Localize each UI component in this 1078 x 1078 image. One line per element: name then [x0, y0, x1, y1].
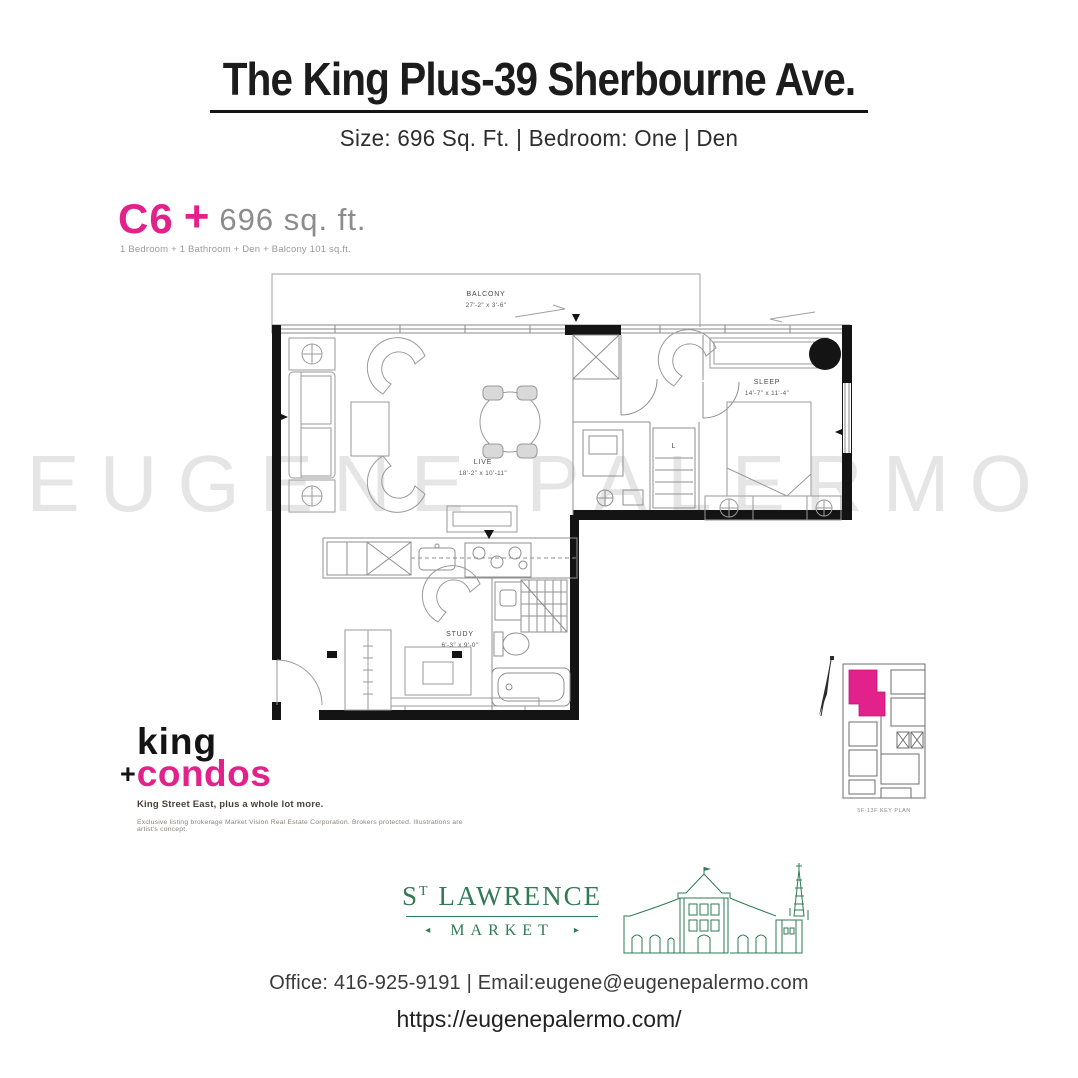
bathroom-area	[492, 578, 570, 710]
unit-description: 1 Bedroom + 1 Bathroom + Den + Balcony 1…	[120, 244, 367, 255]
north-arrow-icon	[819, 656, 834, 716]
market-building-illustration	[618, 858, 818, 963]
brand-plus-icon: +	[120, 762, 136, 786]
balcony-label: BALCONY	[466, 291, 505, 298]
kitchen-area	[323, 530, 577, 578]
market-logo-text: ST LAWRENCE ◂ MARKET ▸	[402, 881, 602, 941]
keyplan-building	[843, 664, 925, 798]
sleep-dims: 14'-7" x 11'-4"	[745, 390, 789, 397]
sleep-label: SLEEP	[754, 379, 781, 386]
keyplan-caption: 5F-13F KEY PLAN	[857, 808, 911, 814]
bedroom-window	[843, 383, 851, 453]
website-url: https://eugenepalermo.com/	[0, 1006, 1078, 1033]
title-underline	[210, 110, 868, 113]
brand-condos-row: + condos	[120, 757, 480, 790]
unit-block: C6 + 696 sq. ft. 1 Bedroom + 1 Bathroom …	[118, 198, 367, 255]
plus-icon: +	[184, 195, 210, 239]
market-logo: ST LAWRENCE ◂ MARKET ▸	[402, 858, 818, 963]
living-area	[289, 338, 540, 532]
brand-condos: condos	[137, 757, 272, 790]
live-dims: 18'-2" x 10'-11"	[459, 470, 507, 477]
flyer-page: The King Plus-39 Sherbourne Ave. Size: 6…	[0, 0, 1078, 1078]
brand-tagline: King Street East, plus a whole lot more.	[137, 799, 480, 810]
study-area	[277, 566, 539, 710]
keyplan: 5F-13F KEY PLAN	[805, 650, 940, 818]
brand-block: king + condos King Street East, plus a w…	[120, 726, 480, 833]
keyplan-unit-highlight	[849, 670, 885, 716]
linen-label: L	[672, 443, 677, 450]
market-sub: ◂ MARKET ▸	[402, 922, 602, 940]
balcony-dims: 27'-2" x 3'-6"	[466, 302, 507, 309]
bedroom-area	[658, 330, 841, 520]
page-title: The King Plus-39 Sherbourne Ave.	[65, 52, 1014, 106]
study-dims: 6'-3" x 9'-0"	[442, 642, 479, 649]
page-subtitle: Size: 696 Sq. Ft. | Bedroom: One | Den	[16, 125, 1062, 152]
balcony	[272, 274, 815, 327]
floorplan-drawing: BALCONY 27'-2" x 3'-6"	[255, 262, 875, 737]
study-label: STUDY	[446, 631, 474, 638]
header: The King Plus-39 Sherbourne Ave. Size: 6…	[0, 52, 1078, 152]
market-rule	[406, 916, 598, 918]
left-arrow-icon: ◂	[425, 925, 430, 936]
market-name: ST LAWRENCE	[402, 881, 602, 912]
brand-disclaimer: Exclusive listing brokerage Market Visio…	[137, 819, 480, 833]
right-arrow-icon: ▸	[574, 925, 579, 936]
contact-line: Office: 416-925-9191 | Email:eugene@euge…	[0, 972, 1078, 995]
window-wall	[272, 325, 850, 333]
unit-row: C6 + 696 sq. ft.	[118, 198, 367, 240]
unit-code: C6	[118, 198, 174, 240]
exterior-walls	[272, 314, 852, 720]
live-label: LIVE	[474, 459, 492, 466]
unit-size: 696 sq. ft.	[219, 204, 366, 235]
